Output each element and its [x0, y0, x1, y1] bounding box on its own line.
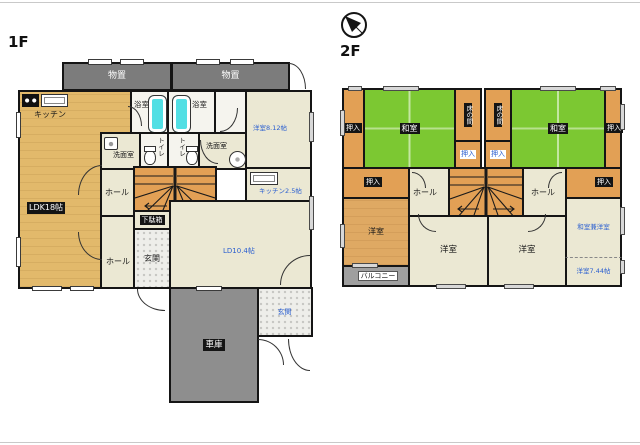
- washing-machine-icon: [229, 151, 246, 168]
- room-label-tokonoma-right: 床の間: [494, 103, 502, 127]
- room-label-tatami-western: 和室兼洋室: [577, 224, 610, 231]
- kitchen-sink-icon: [250, 172, 278, 185]
- room-label-living-dining: LD10.4帖: [223, 247, 255, 255]
- room-label-kitchen: キッチン: [34, 110, 66, 119]
- room-label-closet-edge-left: 押入: [344, 123, 362, 133]
- room-label-closet-center-right: 押入: [490, 150, 506, 158]
- room-label-washroom-left: 洗面室: [113, 151, 134, 159]
- room-label-tokonoma-left: 床の間: [464, 103, 472, 127]
- room-label-balcony: バルコニー: [358, 271, 399, 281]
- window: [32, 286, 62, 291]
- room-tokonoma-left: 床の間: [454, 88, 482, 142]
- room-label-bath-left: 浴室: [134, 101, 149, 110]
- room-label-closet-mid-left: 押入: [364, 177, 382, 187]
- window: [540, 86, 576, 91]
- window: [16, 237, 21, 267]
- room-tatami-left: 和室: [363, 88, 456, 169]
- room-hall-upper: ホール: [100, 168, 136, 217]
- room-tatami-western: 和室兼洋室: [565, 197, 622, 259]
- floor2-title: 2F: [340, 42, 361, 60]
- window: [340, 110, 345, 136]
- room-label-tatami-right: 和室: [548, 123, 568, 135]
- window: [230, 59, 254, 65]
- window: [16, 112, 21, 138]
- room-label-western-center-right: 洋室: [518, 246, 535, 256]
- room-toilet-left: トイレ: [139, 132, 169, 170]
- floor1-title: 1F: [8, 33, 29, 51]
- room-label-entrance-right: 玄関: [278, 308, 292, 316]
- door-arc: [288, 339, 310, 371]
- floorplan-image: 1F 物置 物置 キッチン LDK18帖 浴室 浴室 洋室8.12帖 洗面室 ト…: [0, 0, 640, 445]
- room-label-storage-right: 物置: [173, 64, 288, 89]
- stove-icon: [22, 94, 39, 107]
- window: [196, 286, 222, 291]
- door-arc: [220, 108, 238, 132]
- room-bath-right: 浴室: [167, 90, 216, 134]
- room-label-hall-lower: ホール: [106, 257, 130, 266]
- window: [70, 286, 94, 291]
- door-arc: [137, 289, 165, 311]
- window: [504, 284, 534, 289]
- bathtub-icon: [148, 95, 167, 133]
- room-label-storage-left: 物置: [64, 64, 170, 89]
- room-kitchen-right: キッチン2.5帖: [245, 167, 312, 202]
- window: [352, 263, 378, 268]
- room-garage: 車庫: [169, 287, 259, 403]
- door-arc: [258, 339, 284, 365]
- kitchen-sink-icon: [41, 94, 68, 107]
- toilet-icon: [144, 150, 156, 165]
- room-label-western-1f: 洋室8.12帖: [253, 125, 287, 132]
- room-label-closet-center-left: 押入: [460, 150, 476, 158]
- room-storage-band: 物置 物置: [62, 62, 290, 91]
- window: [600, 86, 616, 91]
- room-western-small: 洋室7.44帖: [565, 257, 622, 287]
- room-tokonoma-right: 床の間: [484, 88, 512, 142]
- window: [620, 104, 625, 130]
- room-entrance-right: 玄関: [256, 287, 313, 337]
- room-washroom-left: 洗面室: [100, 132, 141, 170]
- room-label-garage: 車庫: [203, 339, 224, 351]
- frame-bottom-line: [0, 442, 640, 443]
- frame-top-line: [0, 2, 640, 3]
- room-label-shoe-cabinet: 下駄箱: [140, 215, 165, 225]
- room-balcony: バルコニー: [342, 265, 414, 287]
- room-label-closet-mid-right: 押入: [595, 177, 613, 187]
- stairs-2f: [448, 167, 524, 220]
- window: [196, 59, 220, 65]
- compass-icon: [339, 10, 369, 40]
- room-label-hall-right-2f: ホール: [531, 188, 555, 197]
- room-label-hall-upper: ホール: [105, 188, 129, 197]
- window: [120, 59, 144, 65]
- room-closet-entry: [214, 90, 247, 134]
- room-label-kitchen-size: キッチン2.5帖: [259, 188, 302, 195]
- room-western-center-left: 洋室: [408, 215, 489, 287]
- stairs-graphic: [450, 169, 522, 218]
- window: [620, 207, 625, 235]
- window: [436, 284, 466, 289]
- room-label-toilet-right: トイレ: [177, 137, 184, 157]
- room-label-western-left-2f: 洋室: [368, 227, 384, 236]
- toilet-tank-icon: [186, 146, 198, 152]
- room-label-western-center-left: 洋室: [440, 246, 457, 256]
- room-label-toilet-left: トイレ: [156, 137, 163, 157]
- room-tatami-right: 和室: [510, 88, 606, 169]
- room-western-center-right: 洋室: [487, 215, 567, 287]
- room-label-western-small: 洋室7.44帖: [577, 268, 611, 275]
- room-label-entrance-left: 玄関: [144, 254, 160, 263]
- room-entrance-left: 玄関: [133, 228, 171, 289]
- room-label-ldk: LDK18帖: [27, 202, 65, 214]
- room-hall-lower: ホール: [100, 215, 136, 289]
- room-western-left-2f: 洋室: [342, 197, 410, 267]
- room-label-hall-left-2f: ホール: [413, 188, 437, 197]
- room-label-tatami-left: 和室: [400, 123, 420, 135]
- door-arc: [289, 63, 306, 89]
- toilet-icon: [186, 150, 198, 165]
- window: [309, 112, 314, 142]
- window: [348, 86, 362, 91]
- toilet-tank-icon: [144, 146, 156, 152]
- room-closet-mid-right: 押入: [565, 167, 622, 199]
- room-western-1f: 洋室8.12帖: [245, 90, 312, 169]
- window: [383, 86, 419, 91]
- room-closet-mid-left: 押入: [342, 167, 410, 199]
- room-shoe-cabinet: 下駄箱: [133, 210, 171, 230]
- washbasin-icon: [104, 137, 118, 150]
- window: [340, 224, 345, 248]
- room-label-bath-right: 浴室: [192, 101, 207, 110]
- window: [309, 196, 314, 230]
- room-closet-center-left: 押入: [454, 140, 482, 169]
- window: [88, 59, 112, 65]
- bathtub-icon: [172, 95, 191, 133]
- room-closet-edge-left: 押入: [342, 88, 365, 169]
- room-toilet-right: トイレ: [167, 132, 200, 170]
- window: [620, 260, 625, 274]
- room-closet-center-right: 押入: [484, 140, 512, 169]
